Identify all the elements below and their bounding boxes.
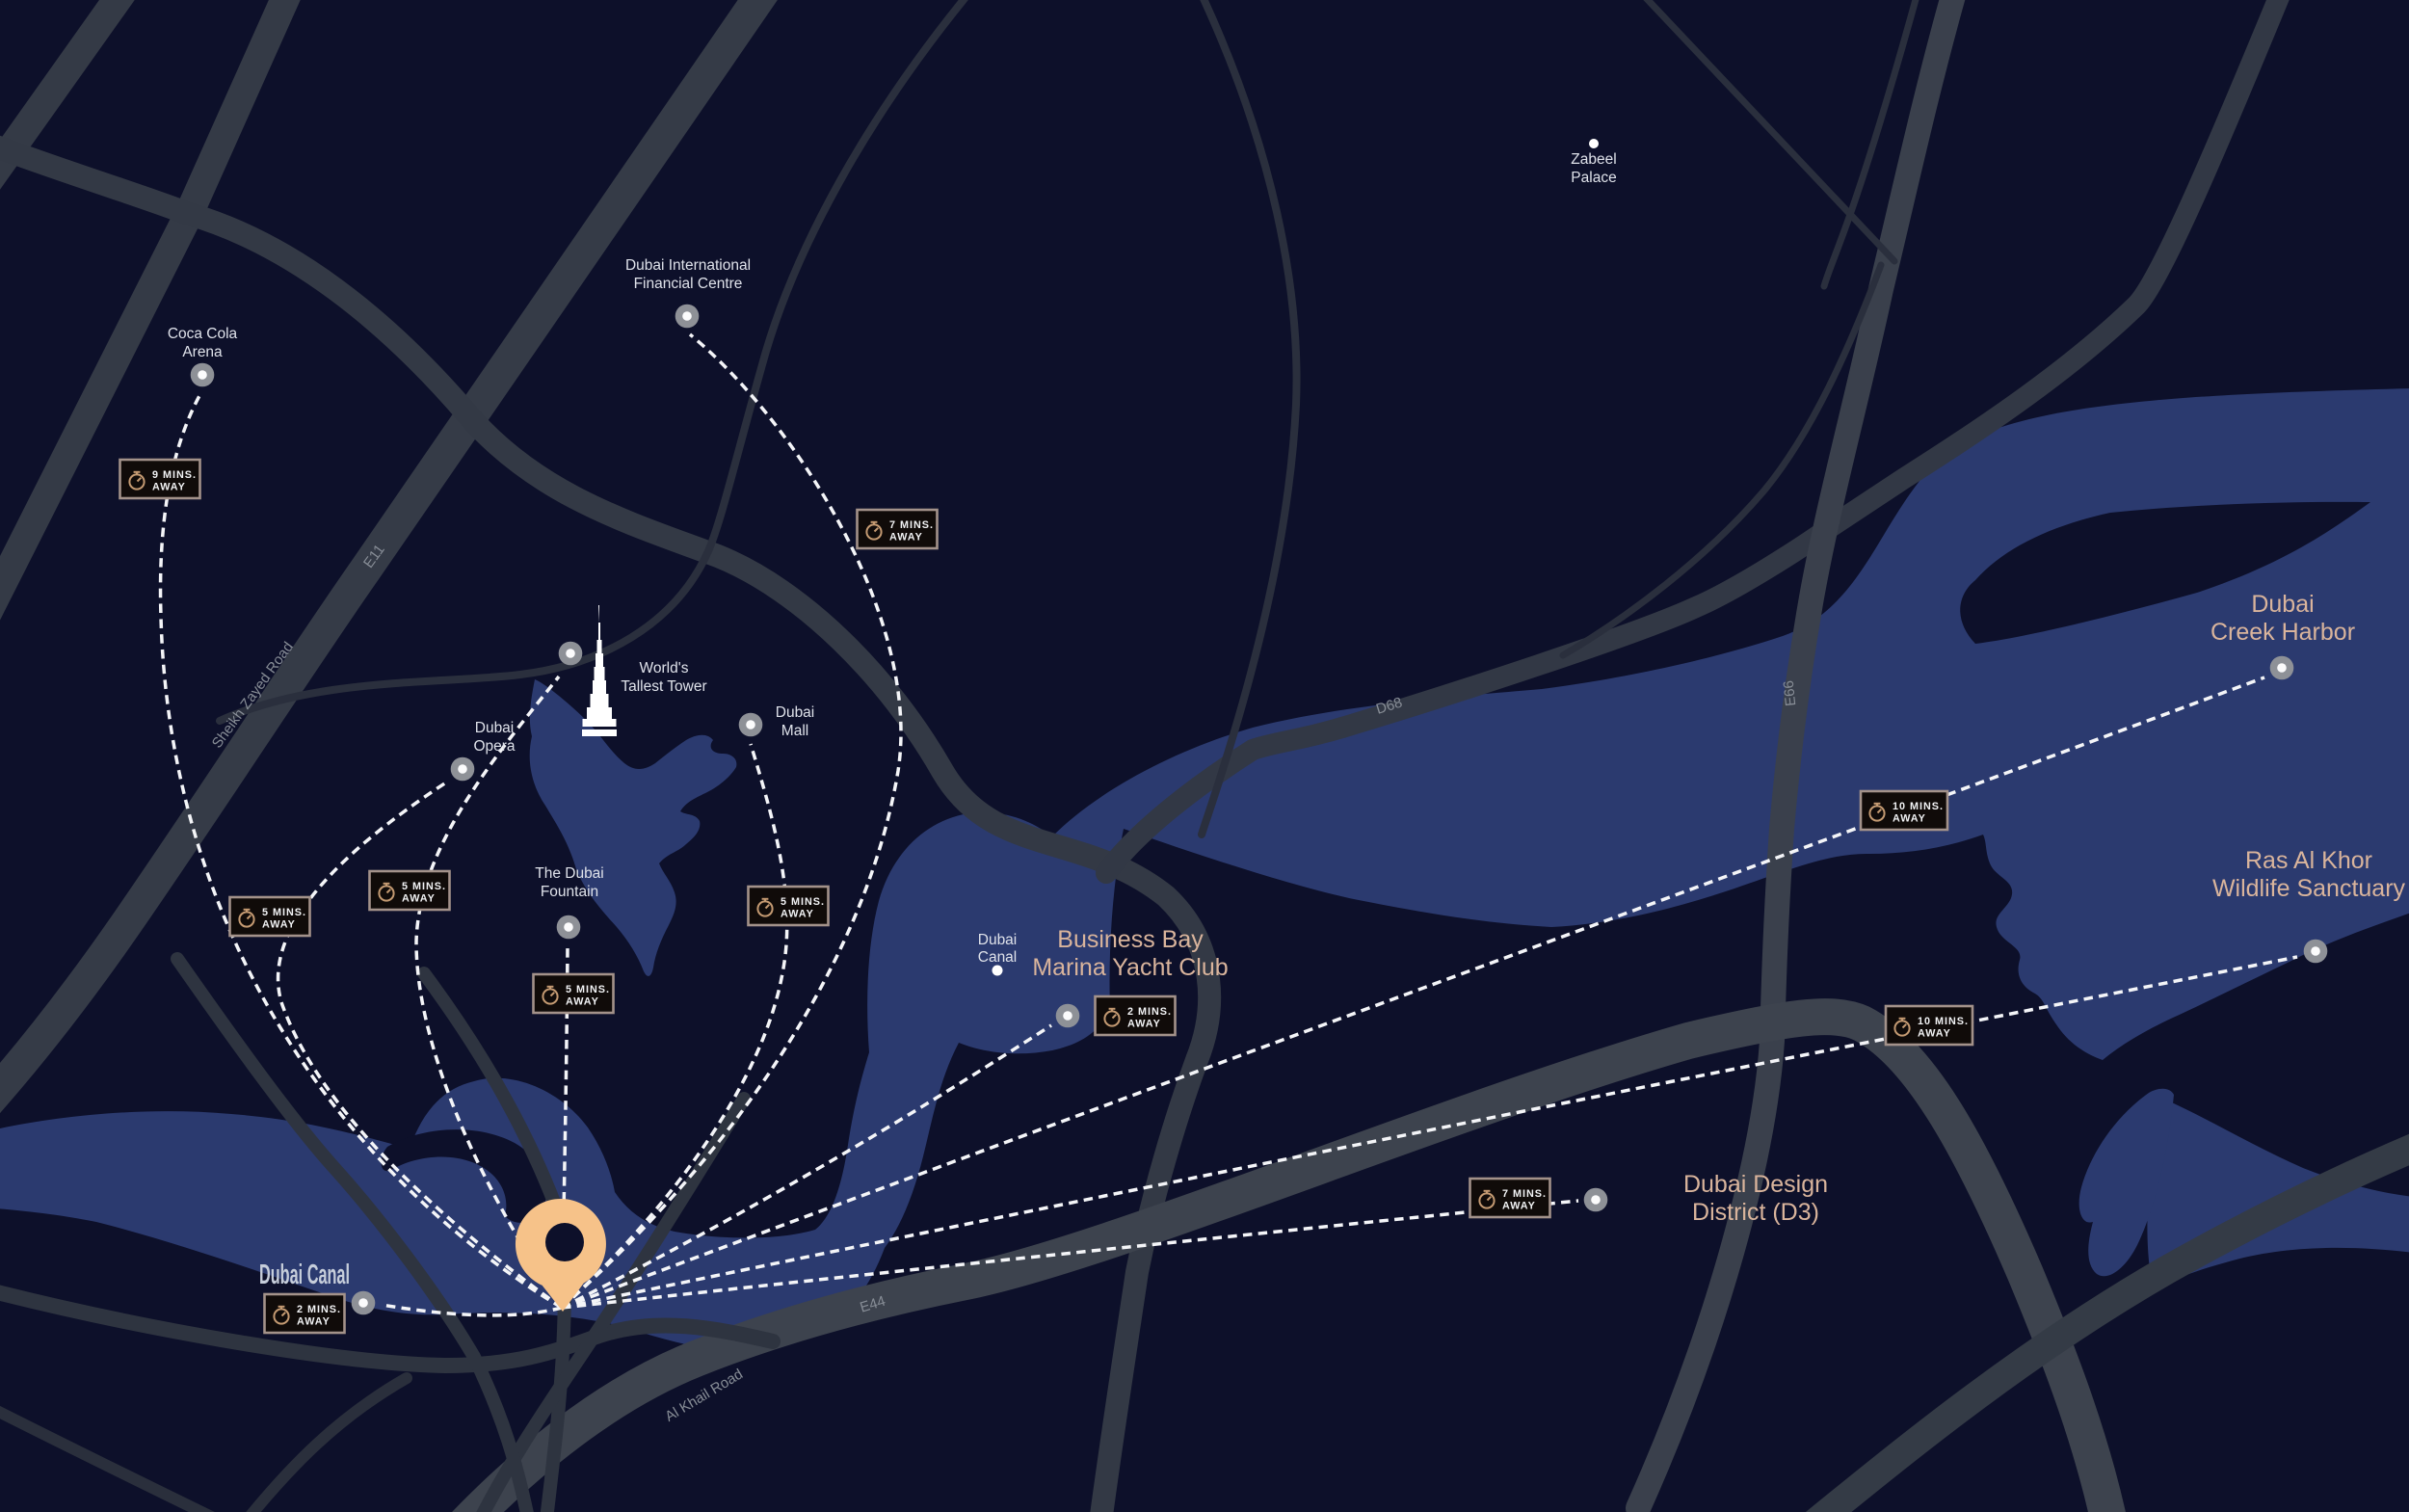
svg-text:AWAY: AWAY [1127,1019,1161,1030]
svg-text:AWAY: AWAY [566,996,599,1008]
svg-text:5 MINS.: 5 MINS. [781,896,825,908]
svg-text:Arena: Arena [182,344,223,360]
svg-text:AWAY: AWAY [889,532,923,544]
svg-text:Canal: Canal [978,949,1018,966]
svg-text:AWAY: AWAY [297,1316,331,1328]
svg-text:Palace: Palace [1571,170,1616,186]
svg-text:9 MINS.: 9 MINS. [152,469,197,481]
svg-text:2 MINS.: 2 MINS. [1127,1006,1172,1018]
svg-text:Creek Harbor: Creek Harbor [2210,619,2355,646]
svg-text:E66: E66 [1781,679,1800,706]
svg-text:7 MINS.: 7 MINS. [1502,1188,1547,1200]
svg-text:AWAY: AWAY [152,482,186,493]
svg-text:AWAY: AWAY [781,909,814,920]
svg-text:AWAY: AWAY [1918,1028,1951,1040]
svg-text:Business Bay: Business Bay [1057,926,1204,953]
svg-text:Dubai: Dubai [776,704,815,721]
svg-text:Dubai Design: Dubai Design [1683,1171,1828,1198]
svg-text:AWAY: AWAY [1502,1201,1536,1212]
svg-text:Dubai International: Dubai International [625,257,751,274]
svg-text:District (D3): District (D3) [1692,1199,1819,1226]
svg-text:5 MINS.: 5 MINS. [262,907,306,918]
svg-text:Marina Yacht Club: Marina Yacht Club [1032,954,1228,981]
svg-text:Fountain: Fountain [541,884,598,900]
svg-text:Ras Al Khor: Ras Al Khor [2245,847,2372,874]
svg-text:Financial Centre: Financial Centre [634,276,743,292]
svg-text:Dubai: Dubai [978,932,1018,948]
svg-text:The Dubai: The Dubai [535,865,604,882]
svg-text:Tallest Tower: Tallest Tower [621,678,706,695]
svg-text:AWAY: AWAY [262,919,296,931]
svg-text:5 MINS.: 5 MINS. [402,881,446,892]
svg-text:Coca Cola: Coca Cola [168,326,238,342]
svg-text:2 MINS.: 2 MINS. [297,1304,341,1315]
svg-text:Wildlife Sanctuary: Wildlife Sanctuary [2212,875,2406,902]
svg-text:7 MINS.: 7 MINS. [889,519,934,531]
svg-text:Mall: Mall [781,723,808,739]
svg-text:World's: World's [640,660,689,676]
svg-text:Dubai Canal: Dubai Canal [259,1260,350,1290]
svg-text:Dubai: Dubai [2251,591,2314,618]
svg-text:10 MINS.: 10 MINS. [1893,801,1944,812]
svg-text:Dubai: Dubai [475,720,515,736]
svg-text:10 MINS.: 10 MINS. [1918,1016,1969,1027]
svg-text:5 MINS.: 5 MINS. [566,984,610,995]
svg-text:AWAY: AWAY [1893,813,1926,825]
svg-text:Zabeel: Zabeel [1571,151,1616,168]
svg-text:Opera: Opera [473,738,515,755]
svg-text:AWAY: AWAY [402,893,436,905]
